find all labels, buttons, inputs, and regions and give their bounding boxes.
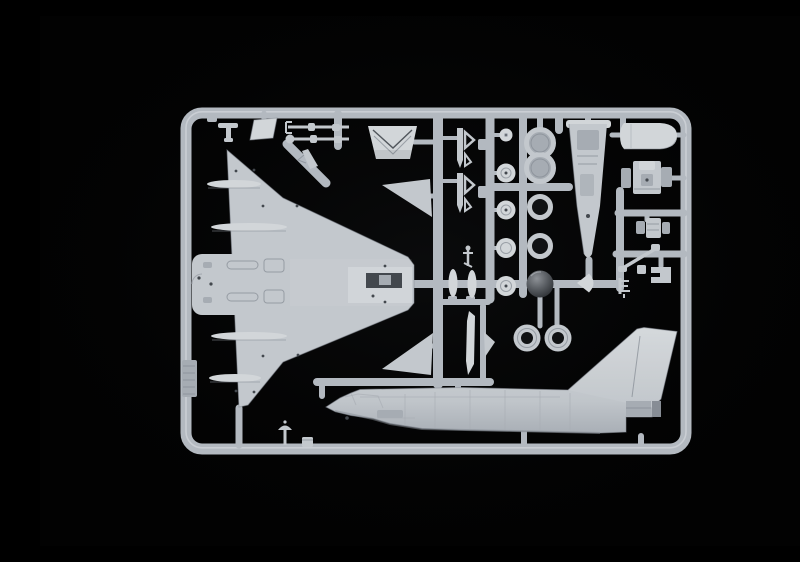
ring-pair — [527, 130, 554, 182]
tire-right — [545, 325, 572, 352]
wheel-4 — [496, 238, 516, 258]
frame-nub — [207, 114, 217, 122]
sprue-photo-canvas — [40, 16, 800, 546]
ring-upper — [530, 197, 551, 218]
stub-block — [302, 437, 313, 447]
sprue-photo: Macro photograph of a light grey injecti… — [40, 16, 800, 546]
radome-ball — [527, 271, 554, 298]
intake-scoop — [368, 126, 417, 159]
part-tag — [182, 360, 197, 397]
wheel-1 — [500, 129, 513, 142]
ring-lower — [530, 236, 551, 257]
wheel-5 — [496, 276, 516, 296]
nose-gear-bay — [348, 267, 412, 303]
wheel-2 — [497, 164, 516, 183]
nose-cone — [620, 123, 677, 149]
door-parallelogram — [250, 118, 277, 140]
tire-left — [514, 325, 541, 352]
wheel-3 — [497, 201, 516, 220]
